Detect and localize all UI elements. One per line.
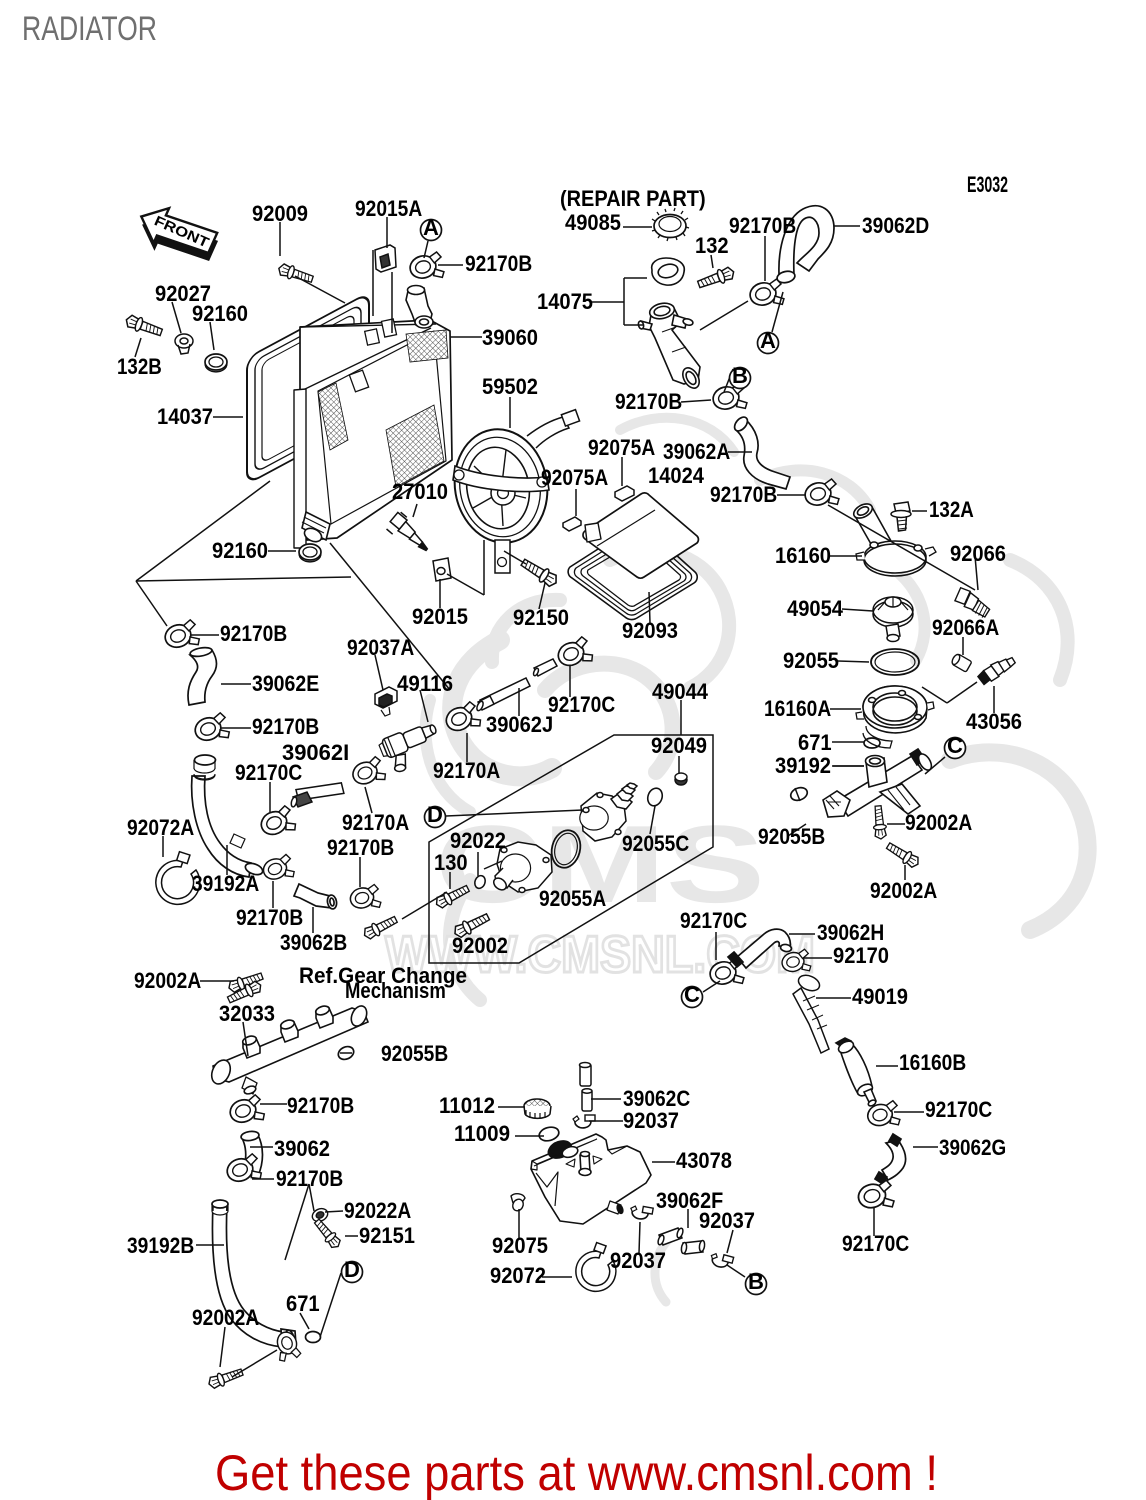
svg-text:92170C: 92170C xyxy=(548,692,615,717)
svg-text:92170B: 92170B xyxy=(710,482,777,507)
svg-text:RADIATOR: RADIATOR xyxy=(22,10,157,48)
svg-text:49019: 49019 xyxy=(852,984,908,1009)
svg-text:14024: 14024 xyxy=(648,463,705,488)
svg-text:14075: 14075 xyxy=(537,289,593,314)
svg-text:92037: 92037 xyxy=(623,1108,679,1133)
svg-text:39062J: 39062J xyxy=(486,712,553,737)
svg-text:16160B: 16160B xyxy=(899,1050,966,1075)
svg-text:B: B xyxy=(732,363,748,388)
svg-text:671: 671 xyxy=(286,1291,320,1316)
svg-text:39060: 39060 xyxy=(482,325,538,350)
svg-text:92072A: 92072A xyxy=(127,815,194,840)
svg-text:132: 132 xyxy=(695,233,729,258)
svg-text:92002A: 92002A xyxy=(134,968,201,993)
svg-text:92093: 92093 xyxy=(622,618,678,643)
svg-text:92151: 92151 xyxy=(359,1223,415,1248)
svg-text:(REPAIR PART): (REPAIR PART) xyxy=(560,186,706,211)
svg-text:C: C xyxy=(947,733,963,758)
svg-text:92160: 92160 xyxy=(192,301,248,326)
svg-text:92055: 92055 xyxy=(783,648,839,673)
svg-text:92015A: 92015A xyxy=(355,196,422,221)
svg-text:92170C: 92170C xyxy=(925,1097,992,1122)
svg-text:49044: 49044 xyxy=(652,679,709,704)
svg-text:92170B: 92170B xyxy=(276,1166,343,1191)
svg-text:92075A: 92075A xyxy=(588,435,655,460)
svg-text:92066A: 92066A xyxy=(932,615,999,640)
svg-text:92170C: 92170C xyxy=(235,760,302,785)
svg-text:132B: 132B xyxy=(117,354,162,379)
svg-text:92055B: 92055B xyxy=(381,1041,448,1066)
svg-text:92170B: 92170B xyxy=(236,905,303,930)
svg-text:59502: 59502 xyxy=(482,374,538,399)
svg-text:92002A: 92002A xyxy=(192,1305,259,1330)
svg-text:49085: 49085 xyxy=(565,210,621,235)
svg-text:92055B: 92055B xyxy=(758,824,825,849)
svg-text:92066: 92066 xyxy=(950,541,1006,566)
svg-text:671: 671 xyxy=(798,730,832,755)
svg-text:92072: 92072 xyxy=(490,1263,546,1288)
svg-text:92002A: 92002A xyxy=(905,810,972,835)
svg-text:92170A: 92170A xyxy=(433,758,500,783)
svg-text:92002A: 92002A xyxy=(870,878,937,903)
svg-text:Get these parts at www.cmsnl.c: Get these parts at www.cmsnl.com ! xyxy=(215,1445,938,1500)
svg-text:92055C: 92055C xyxy=(622,831,689,856)
svg-text:49054: 49054 xyxy=(787,596,844,621)
svg-text:92022A: 92022A xyxy=(344,1198,411,1223)
svg-text:D: D xyxy=(427,802,443,827)
svg-text:92170: 92170 xyxy=(833,943,889,968)
svg-text:92049: 92049 xyxy=(651,733,707,758)
svg-text:39062A: 39062A xyxy=(663,439,730,464)
svg-text:92170C: 92170C xyxy=(680,908,747,933)
svg-text:49116: 49116 xyxy=(397,671,453,696)
svg-text:39062G: 39062G xyxy=(939,1135,1006,1160)
svg-text:92002: 92002 xyxy=(452,933,508,958)
svg-text:32033: 32033 xyxy=(219,1001,275,1026)
svg-text:A: A xyxy=(760,328,776,353)
svg-text:39192B: 39192B xyxy=(127,1233,194,1258)
svg-text:92170A: 92170A xyxy=(342,810,409,835)
svg-text:43078: 43078 xyxy=(676,1148,732,1173)
svg-text:92170B: 92170B xyxy=(465,251,532,276)
svg-text:16160: 16160 xyxy=(775,543,831,568)
svg-text:39062D: 39062D xyxy=(862,213,929,238)
svg-text:92170B: 92170B xyxy=(615,389,682,414)
svg-text:14037: 14037 xyxy=(157,404,213,429)
svg-text:E3032: E3032 xyxy=(967,172,1008,197)
svg-text:D: D xyxy=(344,1257,360,1282)
svg-text:39192: 39192 xyxy=(775,753,831,778)
svg-text:92170C: 92170C xyxy=(842,1231,909,1256)
svg-text:39192A: 39192A xyxy=(192,871,259,896)
svg-text:Mechanism: Mechanism xyxy=(345,978,446,1003)
svg-text:92150: 92150 xyxy=(513,605,569,630)
svg-text:92037: 92037 xyxy=(610,1248,666,1273)
svg-text:92037: 92037 xyxy=(699,1208,755,1233)
svg-text:92170B: 92170B xyxy=(220,621,287,646)
svg-text:27010: 27010 xyxy=(392,479,448,504)
svg-text:130: 130 xyxy=(434,850,468,875)
svg-text:16160A: 16160A xyxy=(764,696,831,721)
svg-text:92170B: 92170B xyxy=(729,213,796,238)
svg-text:92075A: 92075A xyxy=(541,465,608,490)
svg-text:92009: 92009 xyxy=(252,201,308,226)
svg-text:39062B: 39062B xyxy=(280,930,347,955)
svg-text:39062E: 39062E xyxy=(252,671,319,696)
svg-text:92170B: 92170B xyxy=(287,1093,354,1118)
svg-text:39062H: 39062H xyxy=(817,920,884,945)
svg-text:92015: 92015 xyxy=(412,604,468,629)
svg-text:92075: 92075 xyxy=(492,1233,548,1258)
svg-text:92170B: 92170B xyxy=(327,835,394,860)
svg-text:92037A: 92037A xyxy=(347,635,414,660)
svg-text:11012: 11012 xyxy=(439,1093,495,1118)
svg-text:B: B xyxy=(748,1269,764,1294)
svg-text:39062: 39062 xyxy=(274,1136,330,1161)
svg-text:A: A xyxy=(423,215,439,240)
svg-text:43056: 43056 xyxy=(966,709,1022,734)
svg-text:92160: 92160 xyxy=(212,538,268,563)
svg-text:11009: 11009 xyxy=(454,1121,510,1146)
svg-text:92055A: 92055A xyxy=(539,886,606,911)
svg-text:C: C xyxy=(684,982,700,1007)
svg-text:92170B: 92170B xyxy=(252,714,319,739)
svg-text:132A: 132A xyxy=(929,497,974,522)
